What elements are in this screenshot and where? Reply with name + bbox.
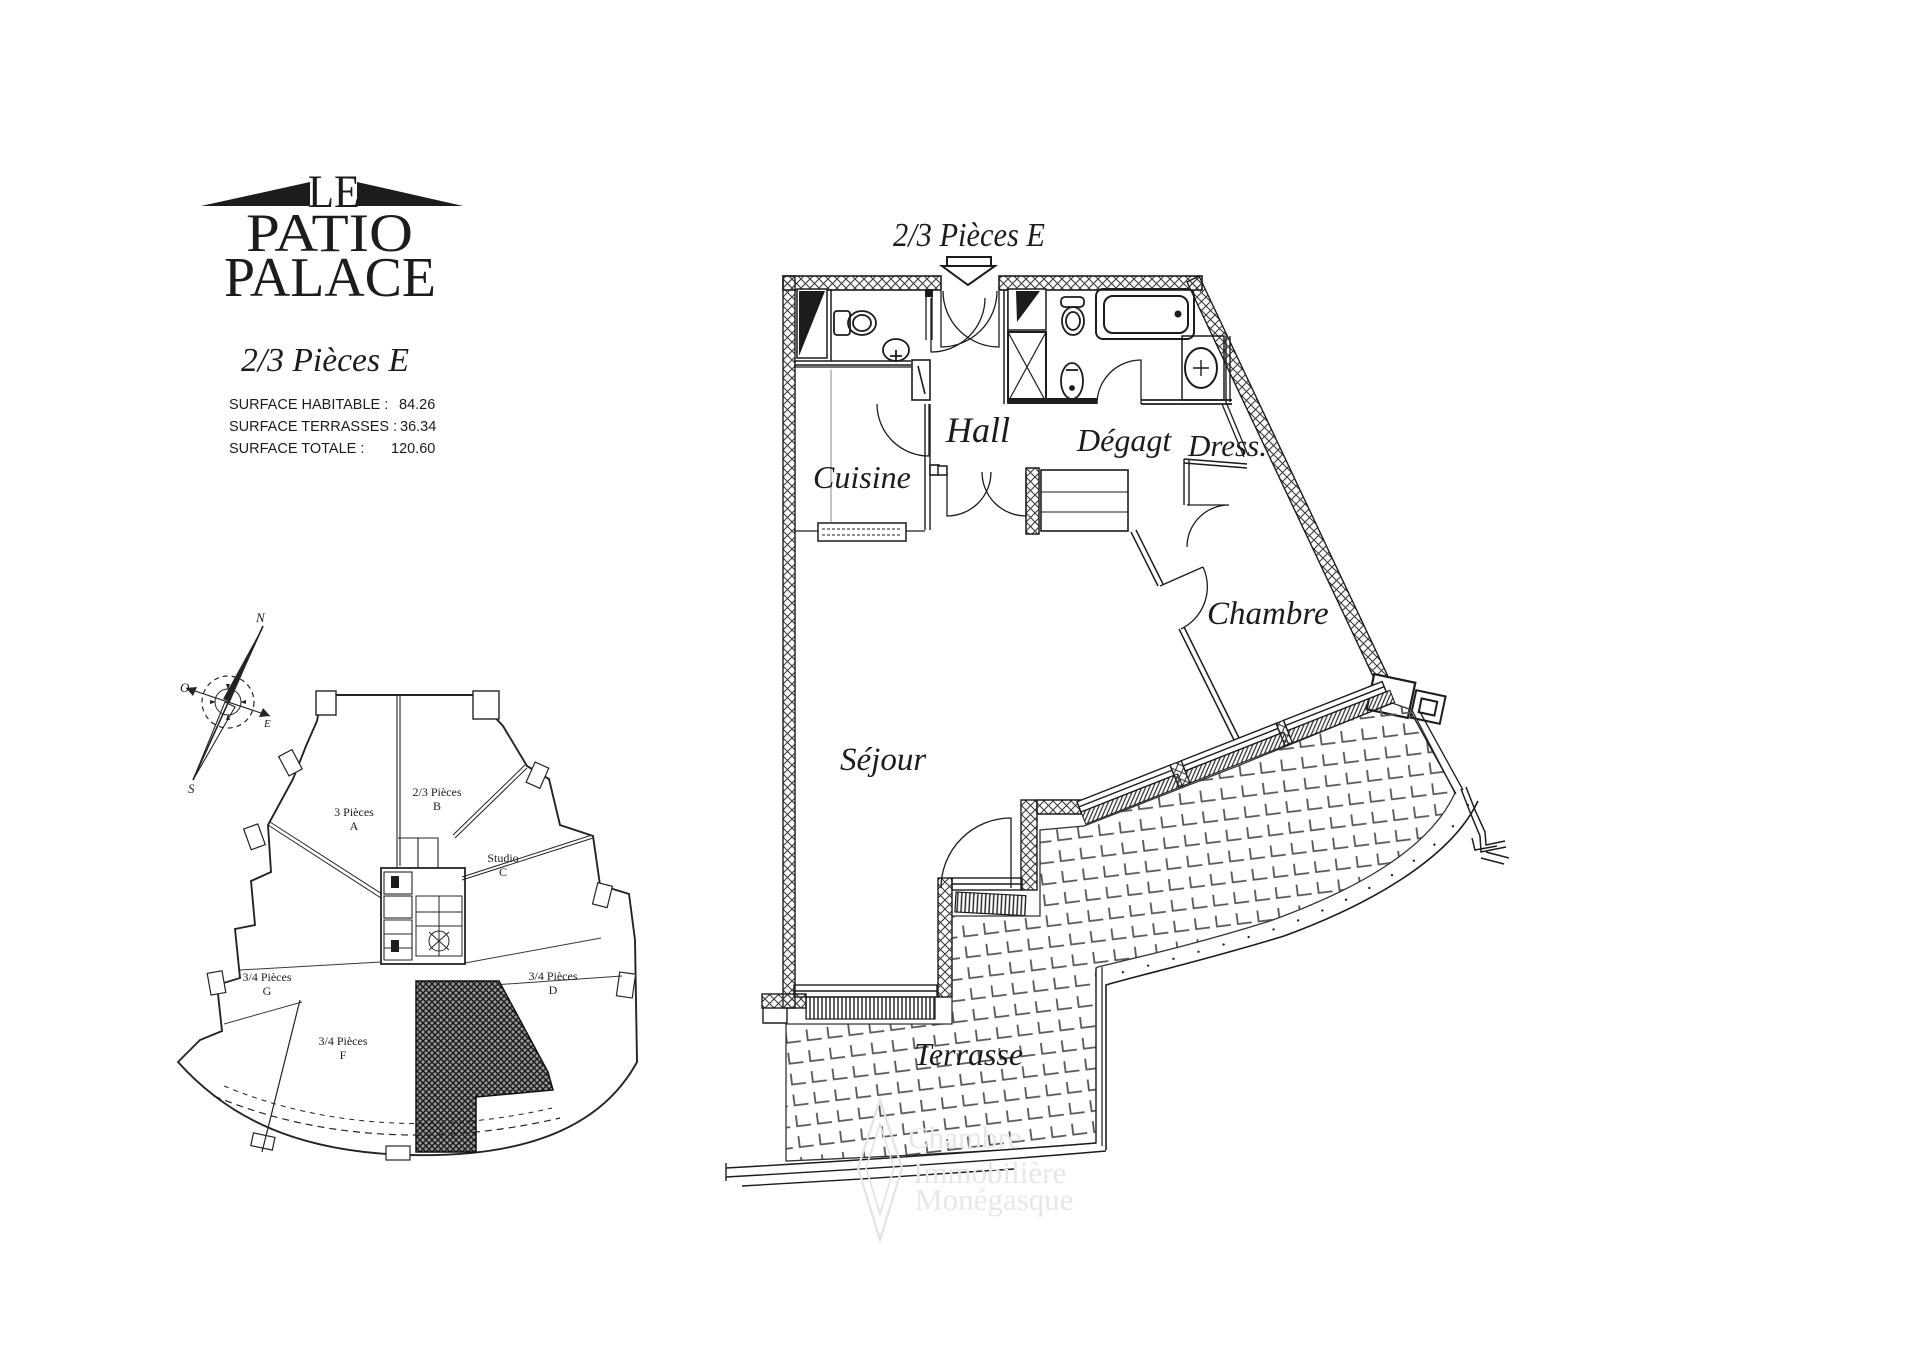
svg-text:Chambre: Chambre: [1207, 596, 1329, 632]
svg-text:B: B: [433, 799, 441, 813]
svg-text:A: A: [350, 819, 359, 833]
svg-text:O: O: [180, 680, 190, 695]
svg-text:Studio: Studio: [487, 851, 518, 865]
svg-text:Hall: Hall: [945, 410, 1010, 450]
svg-text:3/4 Pièces: 3/4 Pièces: [529, 969, 578, 983]
svg-text:Monégasque: Monégasque: [915, 1182, 1073, 1217]
svg-text:2/3 Pièces: 2/3 Pièces: [413, 785, 462, 799]
svg-text:SURFACE HABITABLE :: SURFACE HABITABLE :: [229, 397, 388, 413]
svg-text:Cuisine: Cuisine: [813, 459, 911, 495]
svg-text:84.26: 84.26: [399, 397, 435, 413]
svg-text:G: G: [263, 984, 272, 998]
svg-text:S: S: [188, 781, 195, 796]
svg-text:Chambre: Chambre: [908, 1120, 1022, 1155]
svg-text:N: N: [255, 610, 266, 625]
svg-text:3/4 Pièces: 3/4 Pièces: [319, 1034, 368, 1048]
svg-text:Terrasse: Terrasse: [914, 1036, 1023, 1072]
svg-text:2/3 Pièces E: 2/3 Pièces E: [893, 217, 1045, 254]
svg-text:Dress.: Dress.: [1187, 428, 1267, 463]
svg-text:E: E: [263, 718, 271, 730]
svg-text:SURFACE TOTALE :: SURFACE TOTALE :: [229, 441, 364, 457]
svg-text:F: F: [340, 1048, 347, 1062]
svg-text:SURFACE TERRASSES :: SURFACE TERRASSES :: [229, 419, 397, 435]
svg-text:3 Pièces: 3 Pièces: [334, 805, 374, 819]
svg-text:Dégagt: Dégagt: [1076, 422, 1172, 458]
svg-text:2/3 Pièces E: 2/3 Pièces E: [241, 342, 409, 379]
svg-text:PALACE: PALACE: [224, 247, 436, 309]
svg-text:C: C: [499, 865, 507, 879]
svg-text:3/4 Pièces: 3/4 Pièces: [243, 970, 292, 984]
svg-text:36.34: 36.34: [400, 419, 436, 435]
svg-text:120.60: 120.60: [391, 441, 435, 457]
svg-text:D: D: [549, 983, 558, 997]
svg-text:Séjour: Séjour: [840, 742, 926, 778]
